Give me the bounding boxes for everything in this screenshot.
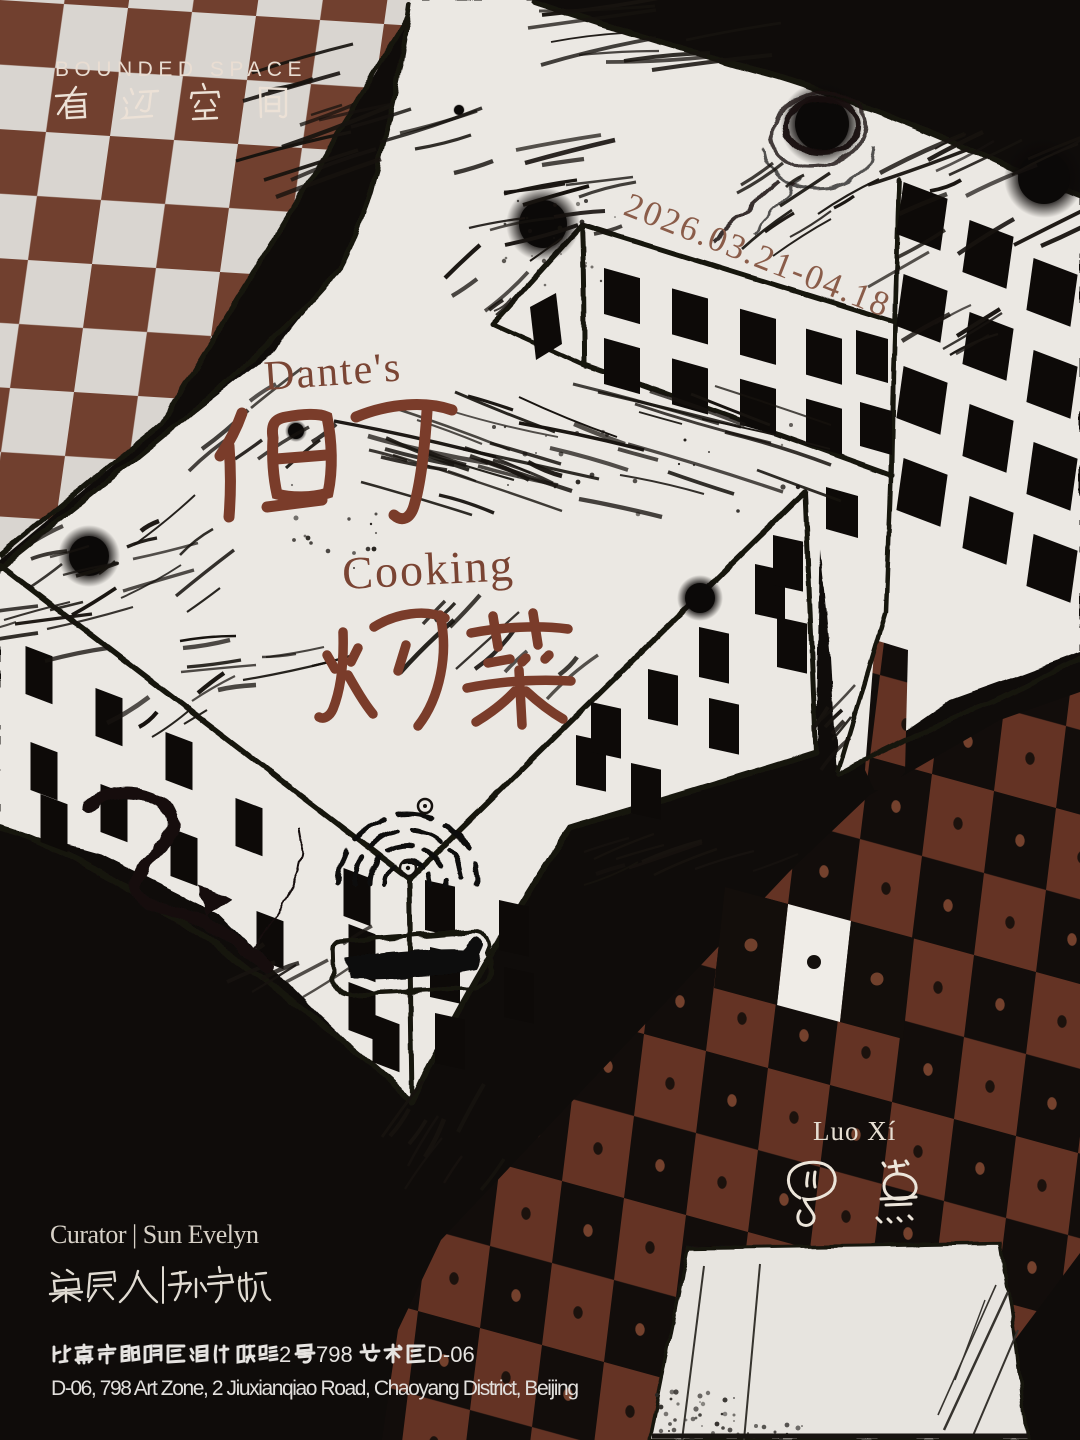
svg-text:Dante's: Dante's bbox=[262, 344, 403, 400]
svg-text:D-06: D-06 bbox=[427, 1342, 475, 1367]
svg-text:Cooking: Cooking bbox=[341, 539, 516, 599]
svg-text:BOUNDED SPACE: BOUNDED SPACE bbox=[55, 58, 307, 81]
svg-text:Curator | Sun Evelyn: Curator | Sun Evelyn bbox=[50, 1220, 259, 1249]
svg-text:2: 2 bbox=[279, 1342, 291, 1367]
svg-text:798: 798 bbox=[316, 1342, 353, 1367]
svg-text:D-06, 798 Art Zone, 2 Jiuxianq: D-06, 798 Art Zone, 2 Jiuxianqiao Road, … bbox=[51, 1377, 579, 1400]
svg-text:Luo Xí: Luo Xí bbox=[813, 1116, 896, 1146]
